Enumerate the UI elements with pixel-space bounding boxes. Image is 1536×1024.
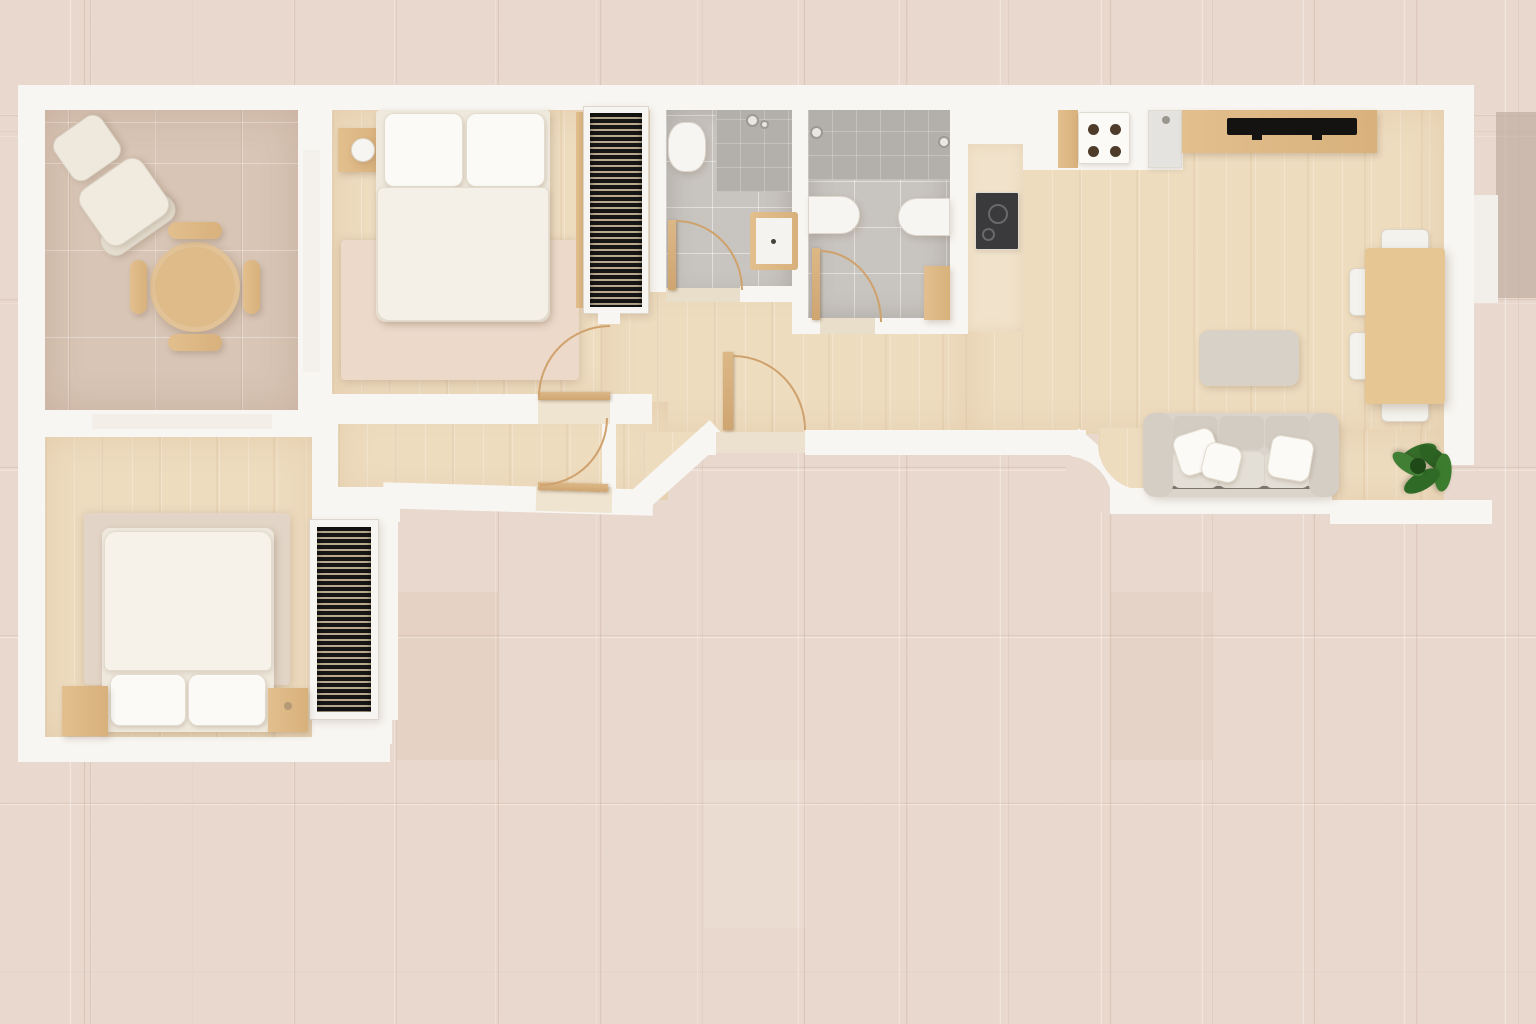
sofa-throw-pillow-3 [1266,434,1316,484]
bed1-pillow-left [384,113,463,187]
cooktop-ring-2 [982,228,995,241]
shower1-head-large [746,114,759,127]
stove-burner-3 [1088,146,1099,157]
dining-stool-east [243,260,260,314]
sofa-arm-right [1309,413,1339,497]
radiator2-slats [317,527,371,712]
bed2-pillow-right [188,674,266,726]
bathroom1-door-sill [666,288,740,302]
sink1-drain [771,239,776,244]
dining-round-table [150,242,240,332]
tv-foot-left [1252,135,1262,140]
wall-entrance [805,430,1086,455]
tv-screen [1227,118,1357,135]
outside-tile-shade-2 [704,760,806,928]
bathroom2-basin-right [898,198,950,236]
shower2-head-right [938,136,950,148]
wall-living-bottom-b [1330,500,1492,524]
coffee-table [1199,330,1299,386]
right-wall-window [1474,195,1498,303]
wall-bathroom1-left [650,108,666,292]
bed1-lamp [351,138,375,162]
stove [1078,112,1130,164]
bed2-pillow-left [110,674,186,726]
dining-table [1365,248,1445,404]
shower1-head-small [760,120,769,129]
bed2-duvet [104,531,272,671]
wall-top [18,85,1474,110]
toilet-bathroom1 [668,122,706,172]
bed2-nightstand-left [62,686,108,736]
stove-burner-1 [1088,124,1099,135]
wall-bathroom2-right [950,108,968,334]
kitchen-cabinet-strip [1058,110,1078,168]
bed1-pillow-right [466,113,545,187]
bathroom2-cabinet [924,266,950,320]
bathroom2-shower-floor [808,108,950,180]
dining-stool-south [168,334,222,351]
outside-tile-dark-patch [1496,112,1536,298]
sofa-arm-left [1143,413,1173,497]
partition-window-strip [303,150,320,372]
bed2-nightstand-knob [284,702,292,710]
wall-right [1444,85,1474,465]
kitchen-column-top-white [965,108,1023,146]
bed1-duvet [377,187,549,321]
cooktop-ring-1 [988,204,1008,224]
kitchen-faucet [1162,116,1170,124]
front-door-sill [716,432,805,453]
bathroom2-basin-left [808,196,860,234]
tv-foot-right [1312,135,1322,140]
bathroom2-door-leaf [812,248,820,320]
shower2-head-left [810,126,823,139]
wall-bed1-bottom [298,394,538,424]
radiator1-slats [590,113,642,307]
dining-stool-west [130,260,147,314]
plant-center [1410,458,1426,474]
stove-burner-2 [1110,124,1121,135]
outside-tile-shade-3 [1110,592,1212,760]
dining-stool-north [168,222,222,239]
bathroom1-door-leaf [668,220,676,290]
outside-tile-shade-1 [396,592,498,760]
stove-burner-4 [1110,146,1121,157]
floor-plan [0,0,1536,1024]
radiator1-tab [598,310,620,324]
dining-bottom-sill [92,414,272,429]
bed2-nightstand-right [268,688,308,732]
front-door-leaf [723,352,733,430]
